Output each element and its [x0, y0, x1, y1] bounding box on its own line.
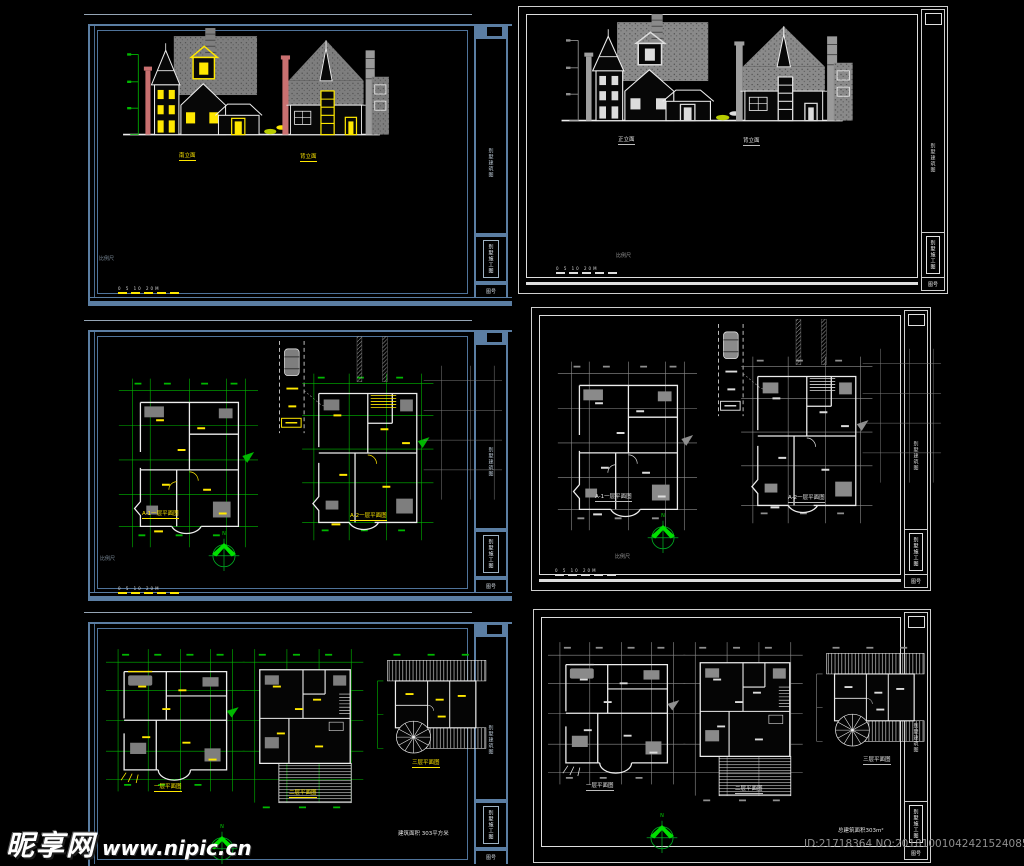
scale-ticks: 0 5 10 20M — [556, 266, 618, 271]
titleblock-box-text: 别墅施工图 — [488, 244, 495, 274]
floor-area-note: 总建筑面积303m² — [838, 828, 884, 834]
image-id-stamp: ID:21718364 NO:20181001042421524085 — [804, 838, 1024, 850]
title-block-strip: 别墅建筑图 别墅施工图 图号 — [474, 24, 508, 298]
sheet-number-cell: 图号 — [486, 851, 496, 864]
sheet-corner-tab — [925, 13, 942, 25]
compass-icon — [645, 819, 679, 853]
plan-label-a1: A-1一层平面图 — [595, 494, 632, 502]
plan-label-level2: 二层平面图 — [735, 786, 763, 794]
plan-label-level3: 三层平面图 — [863, 757, 891, 765]
sheet-number-text: 图号 — [911, 578, 921, 585]
elevation-drawing — [556, 12, 856, 148]
sheet-bottom-bar — [88, 596, 512, 601]
scale-bar-strip — [118, 292, 180, 294]
compass-icon — [646, 519, 680, 553]
sheet-elevations-color: 别墅建筑图 别墅施工图 图号 南立面 背立面 比例尺 0 5 10 20M — [84, 14, 512, 306]
watermark-site-url: www.nipic.cn — [102, 836, 252, 860]
sheet-top-line — [84, 14, 472, 15]
plan-label-level1: 一层平面图 — [154, 784, 182, 792]
sheet-frame — [88, 330, 512, 332]
sheet-bottom-bar — [526, 282, 918, 285]
titleblock-vertical-text: 别墅建筑图 — [488, 148, 495, 178]
sheet-floorplans-ab-mono: 别墅建筑图 别墅施工图 图号 A-1一层平面图 A-2一层平面图 N 比例尺 0… — [531, 307, 931, 591]
sheet-corner-tab — [476, 24, 506, 39]
titleblock-box-text: 别墅施工图 — [930, 240, 937, 270]
scale-bar-strip — [555, 574, 617, 576]
watermark-logo: 昵享网 — [6, 824, 96, 864]
title-block-strip: 别墅建筑图 别墅施工图 图号 — [921, 9, 945, 291]
cad-preview-canvas: 别墅建筑图 别墅施工图 图号 南立面 背立面 比例尺 0 5 10 20M 别墅… — [0, 0, 1024, 866]
scale-ticks: 0 5 10 20M — [118, 586, 180, 591]
elevation-drawing — [118, 26, 392, 162]
sheet-elevations-mono: 别墅建筑图 别墅施工图 图号 正立面 背立面 比例尺 0 5 10 20M — [518, 6, 948, 294]
sheet-floorplans-ab-color: 别墅建筑图 别墅施工图 图号 A-1一层平面图 A-2一层平面图 N 比例尺 0… — [84, 320, 512, 601]
titleblock-box: 别墅施工图 — [483, 240, 499, 278]
sheet-top-line — [84, 612, 472, 613]
sheet-top-line — [84, 320, 472, 321]
scale-label: 比例尺 — [100, 557, 115, 562]
scale-bar-strip — [556, 272, 618, 274]
floorplan-drawing — [546, 629, 944, 835]
plan-label-level2: 二层平面图 — [289, 790, 317, 798]
elevation-label-b: 背立面 — [300, 154, 317, 162]
scale-label: 比例尺 — [615, 555, 630, 560]
sheet-number-text: 图号 — [486, 854, 496, 861]
scale-bar: 0 5 10 20M — [118, 586, 180, 594]
sheet-frame — [88, 297, 512, 298]
scale-bar-strip — [118, 592, 180, 594]
sheet-number-cell: 图号 — [486, 580, 496, 593]
titleblock-vertical-text: 别墅建筑图 — [930, 143, 937, 173]
plan-label-a2: A-2一层平面图 — [788, 495, 825, 503]
north-compass: N — [646, 513, 680, 553]
compass-icon — [207, 537, 241, 571]
scale-bar: 0 5 10 20M — [555, 568, 617, 576]
sheet-number-text: 图号 — [486, 583, 496, 590]
north-compass: N — [207, 531, 241, 571]
sheet-corner-tab — [476, 622, 506, 637]
scale-ticks: 0 5 10 20M — [118, 286, 180, 291]
sheet-number-cell: 图号 — [911, 575, 921, 587]
sheet-number-cell: 图号 — [486, 285, 496, 298]
sheet-corner-tab — [908, 616, 925, 628]
sheet-number-text: 图号 — [486, 288, 496, 295]
titleblock-box: 别墅施工图 — [926, 236, 940, 274]
north-compass: N — [645, 813, 679, 853]
floorplan-drawing — [112, 336, 504, 574]
sheet-floorplans-levels-mono: 别墅建筑图 别墅施工图 图号 一层平面图 二层平面图 三层平面图 总建筑面积30… — [533, 609, 931, 863]
sheet-number-cell: 图号 — [928, 278, 938, 290]
sheet-frame — [88, 24, 90, 306]
scale-label: 比例尺 — [99, 257, 114, 262]
elevation-label-a: 南立面 — [179, 153, 196, 161]
plan-label-a2: A-2一层平面图 — [350, 513, 387, 521]
sheet-frame — [88, 622, 512, 624]
floorplan-drawing — [104, 636, 506, 842]
elevation-label-b: 背立面 — [743, 138, 760, 146]
elevation-label-a: 正立面 — [618, 137, 635, 145]
floorplan-drawing — [551, 319, 943, 557]
plan-label-level3: 三层平面图 — [412, 760, 440, 768]
sheet-bottom-bar — [88, 301, 512, 306]
sheet-frame — [88, 330, 90, 601]
scale-label: 比例尺 — [616, 254, 631, 259]
scale-bar: 0 5 10 20M — [556, 266, 618, 274]
scale-ticks: 0 5 10 20M — [555, 568, 617, 573]
sheet-bottom-bar — [539, 579, 901, 582]
watermark: 昵享网 www.nipic.cn — [6, 824, 252, 864]
plan-label-level1: 一层平面图 — [586, 783, 614, 791]
scale-bar: 0 5 10 20M — [118, 286, 180, 294]
sheet-number-text: 图号 — [911, 850, 921, 857]
floor-area-note: 建筑面积 303平方米 — [398, 831, 449, 837]
sheet-frame — [94, 332, 95, 593]
sheet-frame — [94, 26, 95, 298]
plan-label-a1: A-1一层平面图 — [142, 511, 179, 519]
sheet-number-text: 图号 — [928, 281, 938, 288]
